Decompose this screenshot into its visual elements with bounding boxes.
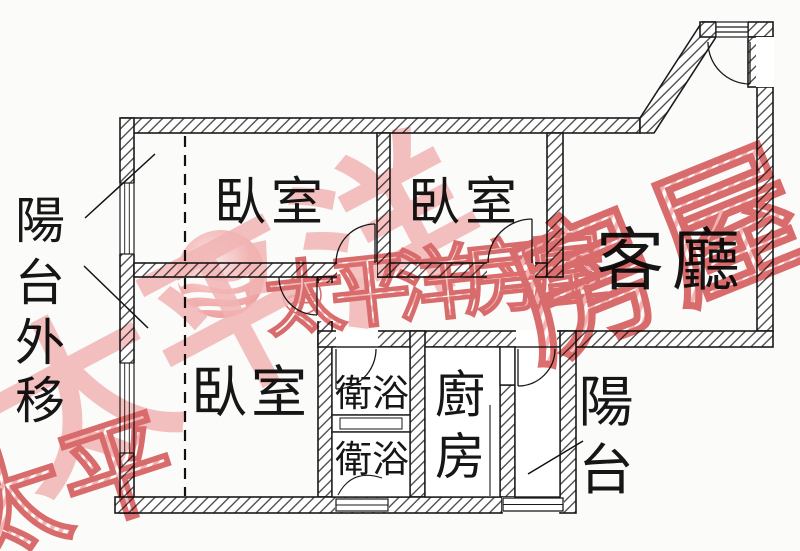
watermark-outline-large-text: 房屋 bbox=[486, 122, 800, 391]
watermark: 太平洋 太平洋房屋 房屋 太平 bbox=[0, 0, 800, 551]
floorplan-image: 臥室 臥室 臥室 客廳 衛浴 衛浴 廚 房 陽 台 陽 台 外 移 bbox=[0, 0, 800, 551]
